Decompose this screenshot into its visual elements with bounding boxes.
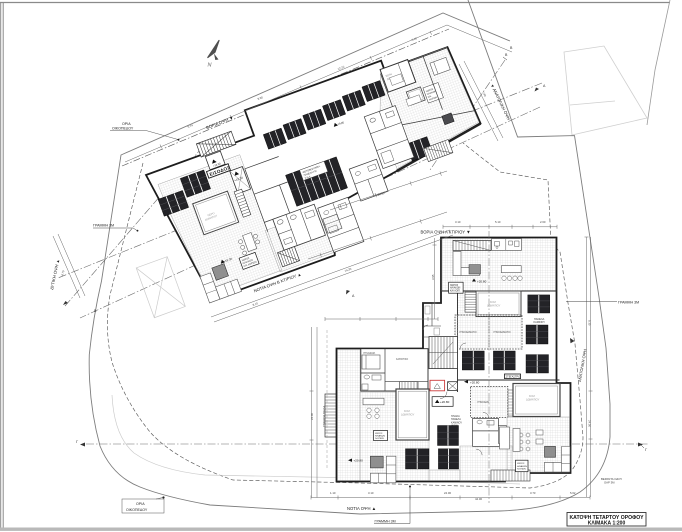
svg-text:3.10: 3.10	[368, 491, 374, 495]
svg-text:ΟΑΡ 3Μ: ΟΑΡ 3Μ	[604, 480, 615, 484]
svg-text:ΥΠΝΟΔΩΜΑΤΙΟ: ΥΠΝΟΔΩΜΑΤΙΟ	[493, 331, 511, 334]
svg-text:9.30: 9.30	[588, 320, 592, 326]
svg-text:ΥΠΝΟΔΩΜ.: ΥΠΝΟΔΩΜ.	[477, 401, 490, 404]
svg-text:24.00: 24.00	[310, 413, 314, 420]
svg-text:ΟΙΚΟΠΕΔΟΥ: ΟΙΚΟΠΕΔΟΥ	[126, 508, 148, 512]
svg-text:ΔΩΜΑΤΙΟΥ: ΔΩΜΑΤΙΟΥ	[526, 397, 540, 401]
svg-text:ΚΟΙΛ: ΚΟΙΛ	[404, 409, 410, 413]
svg-text:ΗΛΙΑΚΩΝ: ΗΛΙΑΚΩΝ	[450, 287, 461, 290]
svg-text:ΓΡΑΜΜΗ 3Μ: ΓΡΑΜΜΗ 3Μ	[618, 301, 639, 305]
svg-text:ΧΩΡΟΣ: ΧΩΡΟΣ	[450, 285, 459, 287]
svg-text:ΓΡΑΜΜΗ 3Μ: ΓΡΑΜΜΗ 3Μ	[375, 520, 396, 524]
svg-text:ΗΛΙΑΚΩΝ: ΗΛΙΑΚΩΝ	[517, 465, 527, 468]
svg-text:ΧΩΡΟΣ: ΧΩΡΟΣ	[517, 463, 525, 465]
svg-text:24.00: 24.00	[588, 420, 592, 427]
svg-text:+20.80: +20.80	[354, 459, 364, 463]
svg-text:ΟΡΙΑ: ΟΡΙΑ	[122, 122, 131, 126]
svg-text:ΣΤΕΓΑΣΤΡΟ: ΣΤΕΓΑΣΤΡΟ	[506, 375, 521, 379]
svg-text:+20.80: +20.80	[477, 280, 487, 284]
svg-text:ΛΟΙΠΩΝ: ΛΟΙΠΩΝ	[517, 469, 526, 471]
svg-text:5.10: 5.10	[495, 220, 501, 224]
svg-text:2.60: 2.60	[540, 220, 546, 224]
svg-text:ΚΑΘΙΣΤΙΚΟ: ΚΑΘΙΣΤΙΚΟ	[396, 358, 408, 361]
svg-text:ΒΟΡΙΑ ΟΨΗ Α ΚΤΙΡΙΟΥ ▼: ΒΟΡΙΑ ΟΨΗ Α ΚΤΙΡΙΟΥ ▼	[421, 230, 471, 235]
svg-text:3.73: 3.73	[530, 491, 536, 495]
svg-text:ΥΠΝΟΔΩΜΑΤΙΟ: ΥΠΝΟΔΩΜΑΤΙΟ	[459, 331, 477, 334]
svg-text:ΚΟΙΛ: ΚΟΙΛ	[529, 394, 535, 398]
svg-text:3.10: 3.10	[455, 220, 461, 224]
svg-text:ΚΛΙΜΑΚΑ 1:200: ΚΛΙΜΑΚΑ 1:200	[588, 521, 626, 527]
svg-text:ΛΟΙΠΩΝ: ΛΟΙΠΩΝ	[375, 438, 384, 440]
svg-text:ΝΟΤΙΑ ΟΨΗ ▲: ΝΟΤΙΑ ΟΨΗ ▲	[347, 506, 376, 511]
svg-text:N: N	[208, 63, 212, 69]
svg-text:24.00: 24.00	[444, 491, 451, 495]
svg-text:ΚΑΙ ΛΟΙΠ.: ΚΑΙ ΛΟΙΠ.	[450, 289, 461, 292]
svg-text:ΓΡΑΜΜΗ 3Μ: ΓΡΑΜΜΗ 3Μ	[93, 224, 114, 228]
svg-text:ΟΙΚΟΠΕΔΟΥ: ΟΙΚΟΠΕΔΟΥ	[112, 127, 134, 131]
svg-text:3.95: 3.95	[431, 274, 435, 280]
svg-text:ΗΛΙΑΚΩΝ: ΗΛΙΑΚΩΝ	[375, 435, 385, 438]
svg-text:ΔΩΜΑΤΙΟΥ: ΔΩΜΑΤΙΟΥ	[401, 412, 415, 416]
svg-text:ΟΡΙΑ: ΟΡΙΑ	[136, 502, 145, 506]
svg-text:5.62: 5.62	[570, 491, 576, 495]
svg-text:44.00: 44.00	[475, 497, 482, 501]
svg-text:+20.80: +20.80	[440, 400, 450, 404]
svg-text:ΥΠΑΙΘΡΙΑ ΣΚΑΛΑ: ΥΠΑΙΘΡΙΑ ΣΚΑΛΑ	[322, 405, 326, 427]
svg-text:1.10: 1.10	[330, 491, 336, 495]
svg-text:ΥΠΝΟΔΩΜ.: ΥΠΝΟΔΩΜ.	[363, 352, 376, 355]
svg-text:ΚΟΙΛ: ΚΟΙΛ	[490, 300, 496, 304]
svg-text:ΚΑΜΙΝΟΥ: ΚΑΜΙΝΟΥ	[534, 321, 546, 324]
svg-text:+20.80: +20.80	[470, 380, 480, 384]
